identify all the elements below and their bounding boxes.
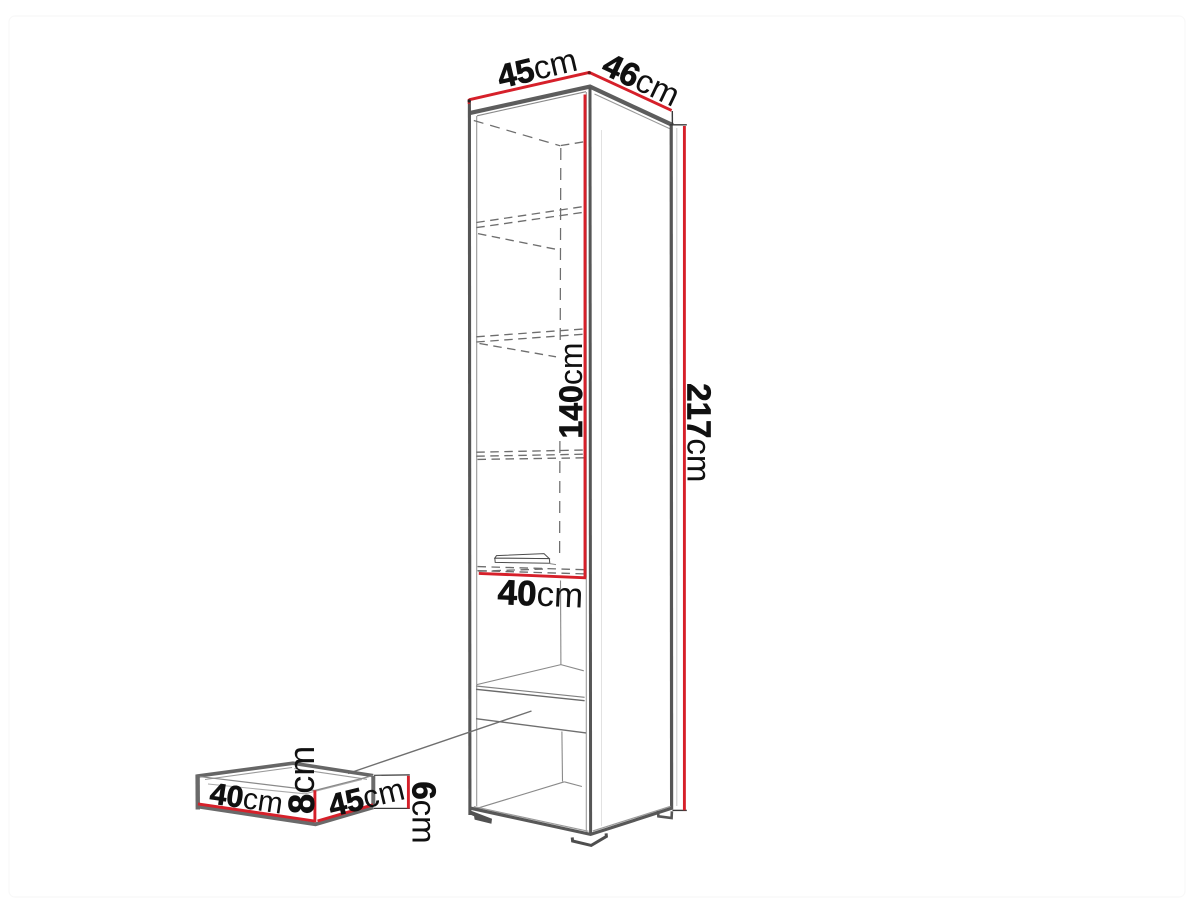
svg-text:40cm: 40cm (497, 572, 584, 615)
svg-text:140cm: 140cm (553, 342, 589, 438)
svg-text:8cm: 8cm (280, 746, 321, 814)
svg-text:217cm: 217cm (681, 383, 718, 482)
svg-text:6cm: 6cm (406, 781, 443, 843)
